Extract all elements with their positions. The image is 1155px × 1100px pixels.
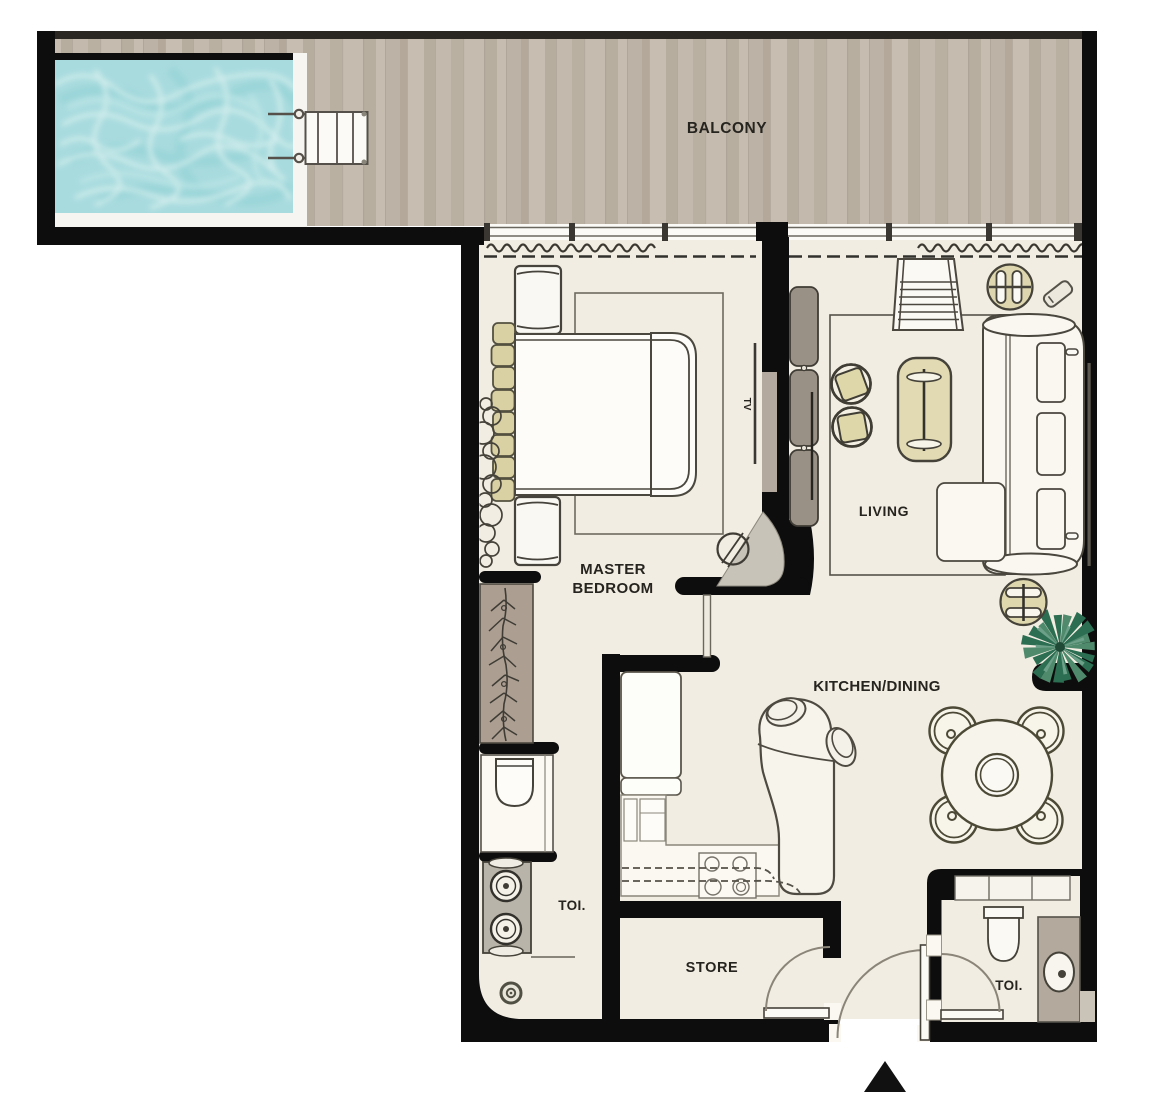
svg-text:LIVING: LIVING	[859, 503, 909, 519]
svg-text:BEDROOM: BEDROOM	[572, 580, 653, 597]
svg-text:BALCONY: BALCONY	[687, 120, 767, 137]
svg-text:TOI.: TOI.	[558, 898, 586, 913]
svg-text:TOI.: TOI.	[995, 978, 1023, 993]
svg-text:TV: TV	[741, 398, 752, 411]
svg-text:STORE: STORE	[686, 960, 739, 976]
svg-text:KITCHEN/DINING: KITCHEN/DINING	[813, 678, 941, 695]
svg-text:MASTER: MASTER	[580, 561, 646, 578]
